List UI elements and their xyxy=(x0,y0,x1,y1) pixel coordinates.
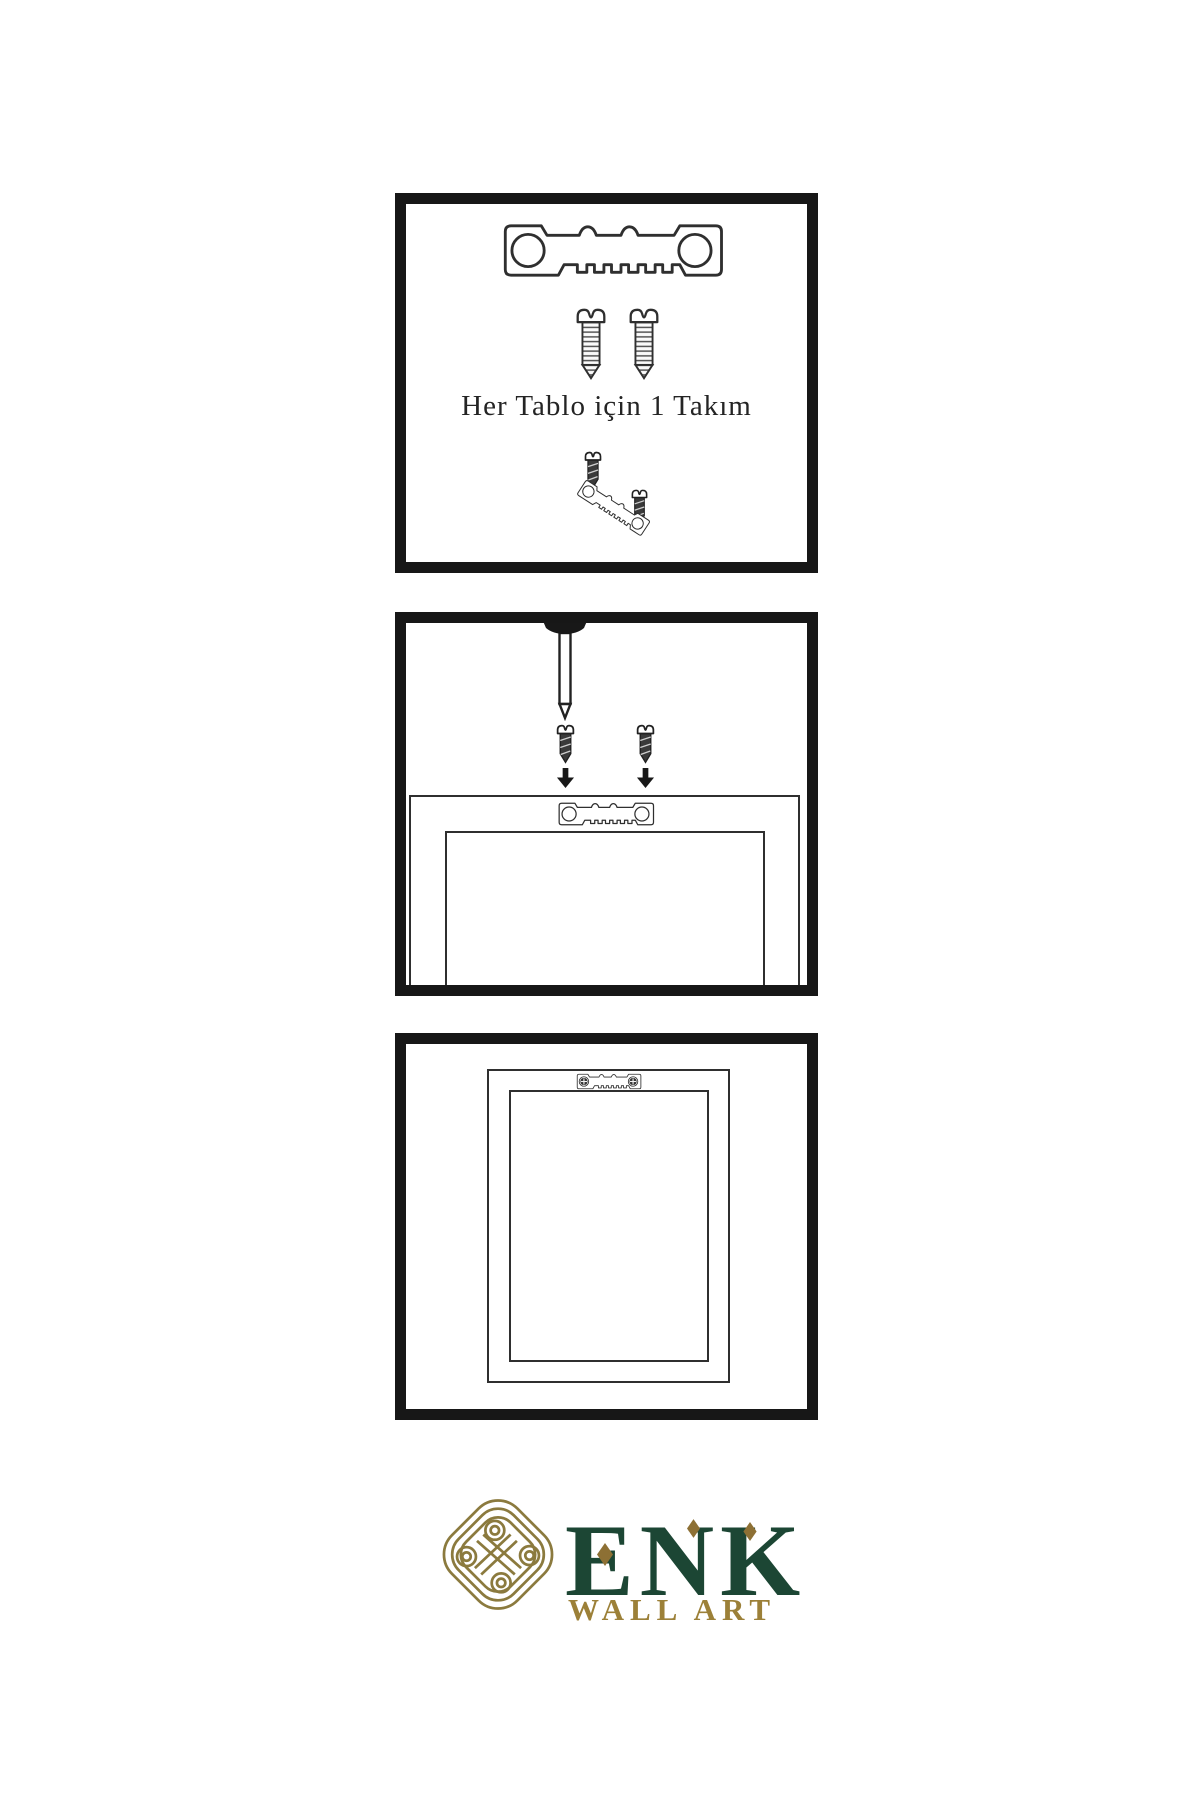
knot-icon xyxy=(435,1486,561,1623)
diamond-accent-icon xyxy=(597,1543,613,1566)
frame-back-inner-edge xyxy=(509,1090,709,1362)
screw-icon xyxy=(555,723,576,765)
screw-icon xyxy=(625,306,663,382)
diamond-accent-icon xyxy=(687,1519,700,1538)
instruction-sheet: Her Tablo için 1 Takım xyxy=(0,0,1200,1800)
mounted-sawtooth-hanger-icon xyxy=(575,1072,642,1091)
step-3-panel xyxy=(395,1033,818,1420)
nail-icon xyxy=(541,621,589,721)
screw-into-hanger-icon xyxy=(575,450,665,555)
sawtooth-hanger-icon xyxy=(495,223,728,278)
sawtooth-hanger-icon xyxy=(553,802,658,826)
step-2-panel xyxy=(395,612,818,996)
brand-subtitle: WALL ART xyxy=(568,1594,776,1625)
down-arrow-icon xyxy=(636,768,655,789)
screw-icon xyxy=(635,723,656,765)
set-caption: Her Tablo için 1 Takım xyxy=(406,390,807,423)
screw-icon xyxy=(572,306,610,382)
frame-back-inner-edge xyxy=(445,831,765,996)
down-arrow-icon xyxy=(556,768,575,789)
step-1-panel: Her Tablo için 1 Takım xyxy=(395,193,818,573)
diamond-accent-icon xyxy=(743,1522,757,1541)
brand-logo: ENK WALL ART xyxy=(420,1470,820,1650)
